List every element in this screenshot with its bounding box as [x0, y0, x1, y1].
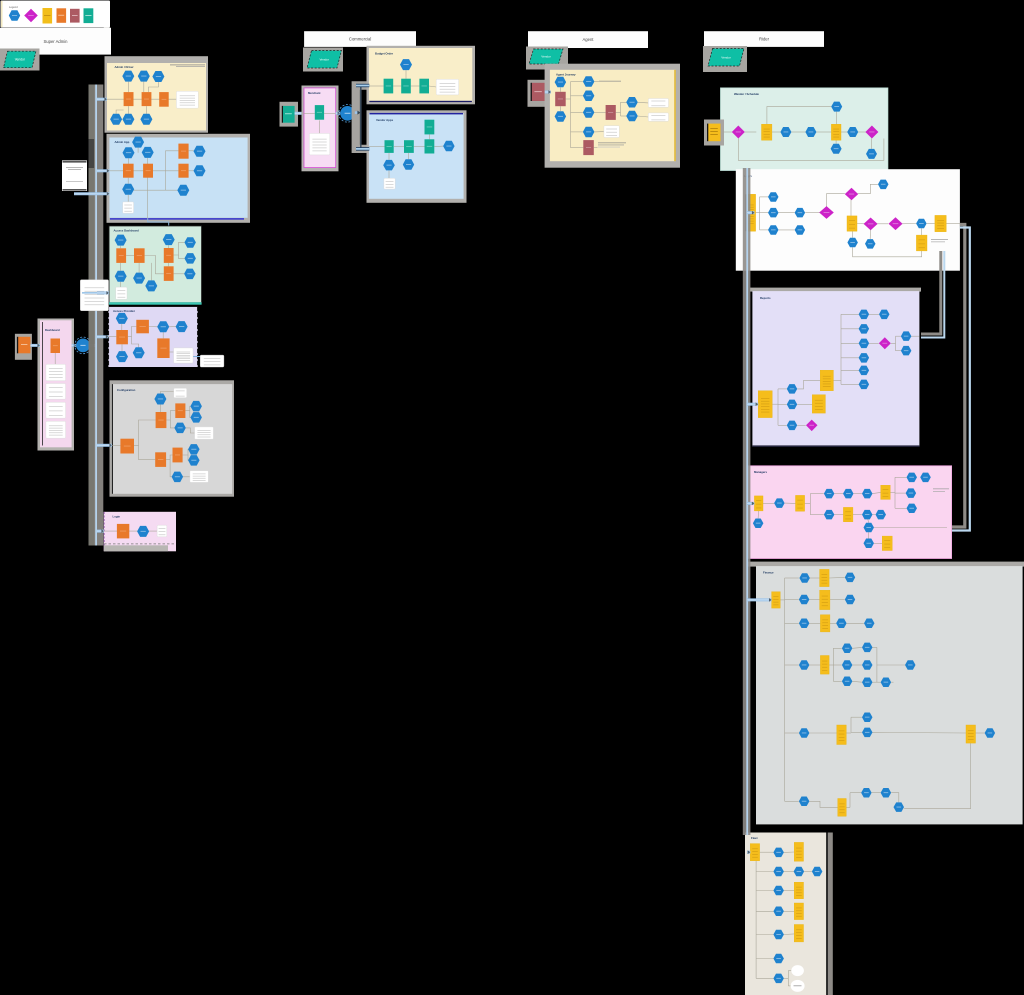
svg-text:Admin / Driver: Admin / Driver — [115, 65, 135, 69]
svg-text:Access Provider: Access Provider — [113, 309, 136, 313]
svg-text:Agent: Agent — [583, 37, 595, 42]
svg-text:Super Admin: Super Admin — [44, 39, 69, 44]
svg-text:Budget Order: Budget Order — [375, 52, 394, 56]
svg-text:Vendor: Vendor — [15, 58, 26, 62]
svg-text:Legend: Legend — [9, 5, 18, 9]
svg-text:Dashboard: Dashboard — [45, 328, 60, 332]
svg-text:Configuration: Configuration — [117, 388, 136, 392]
svg-text:Agent Journey: Agent Journey — [556, 73, 576, 77]
svg-text:Merchant: Merchant — [308, 91, 321, 95]
svg-text:Rider: Rider — [759, 37, 770, 42]
svg-text:Vendor: Vendor — [319, 57, 329, 61]
svg-text:Vendor: Vendor — [541, 55, 551, 59]
svg-text:Finance: Finance — [763, 571, 774, 575]
svg-text:Admin App: Admin App — [115, 140, 130, 144]
svg-text:Commercial: Commercial — [349, 37, 371, 42]
svg-text:Login: Login — [113, 515, 121, 519]
svg-text:Managers: Managers — [754, 470, 768, 474]
svg-text:Vendor: Vendor — [721, 55, 731, 59]
svg-text:Vendor Apps: Vendor Apps — [376, 118, 394, 122]
svg-text:Wander / Schedule: Wander / Schedule — [734, 92, 759, 96]
svg-text:Access Dashboard: Access Dashboard — [114, 229, 139, 233]
svg-text:Reports: Reports — [760, 296, 771, 300]
svg-text:Fleet: Fleet — [751, 836, 758, 840]
